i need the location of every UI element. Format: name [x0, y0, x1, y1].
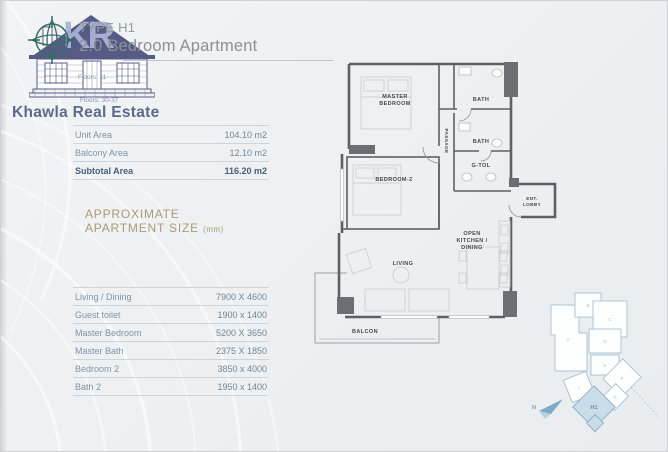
- brochure-page: KR TYPE H1 2.0 Bedroom Apartment Floors:…: [0, 0, 668, 452]
- table-row: Balcony Area 12.10 m2: [73, 144, 269, 162]
- north-arrow-icon: N: [532, 399, 563, 419]
- label-ent-lobby: ENT.: [526, 196, 538, 201]
- door-arc: [509, 205, 521, 217]
- size-row-value: 7900 X 4600: [216, 292, 267, 302]
- table-row: Living / Dining 7900 X 4600: [73, 287, 269, 306]
- size-row-value: 1950 x 1400: [217, 382, 267, 392]
- table-row: Master Bath 2375 X 1850: [73, 342, 269, 360]
- label-balcony: BALCON: [352, 329, 378, 335]
- size-row-label: Living / Dining: [75, 292, 132, 302]
- area-row-value: 104.10 m2: [224, 130, 267, 140]
- left-edge-strip: [1, 1, 7, 451]
- size-row-value: 2375 X 1850: [216, 346, 267, 356]
- label-guest-toilet: G-TOL: [471, 163, 490, 169]
- keyplan-boundary-dashed: [631, 387, 659, 417]
- svg-text:LOBBY: LOBBY: [523, 202, 541, 207]
- label-open-kitchen: OPEN: [463, 231, 480, 237]
- table-row: Unit Area 104.10 m2: [73, 125, 269, 144]
- size-row-value: 1900 x 1400: [217, 310, 267, 320]
- svg-text:G: G: [613, 395, 617, 400]
- svg-text:F: F: [621, 376, 624, 381]
- svg-text:DINING: DINING: [461, 245, 483, 251]
- dining-set: [459, 247, 507, 289]
- svg-text:B: B: [586, 303, 589, 308]
- kitchen-counter: [499, 221, 510, 287]
- area-row-label: Balcony Area: [75, 148, 128, 158]
- area-row-value: 12.10 m2: [229, 148, 267, 158]
- label-master-bedroom: MASTER: [382, 94, 408, 100]
- size-section-heading: APPROXIMATE APARTMENT SIZE (mm): [85, 207, 224, 237]
- area-row-label: Unit Area: [75, 130, 112, 140]
- label-living: LIVING: [393, 261, 414, 267]
- size-heading-line2-text: APARTMENT SIZE: [85, 221, 199, 235]
- bedroom2-bed: [353, 165, 401, 215]
- size-row-value: 3850 x 4000: [217, 364, 267, 374]
- window: [381, 316, 437, 319]
- size-row-label: Master Bedroom: [75, 328, 142, 338]
- table-row: Bath 2 1950 x 1400: [73, 378, 269, 396]
- svg-text:E: E: [603, 363, 606, 368]
- unit-type-label: TYPE H1: [79, 20, 257, 35]
- size-heading-unit: (mm): [203, 225, 224, 234]
- size-row-value: 5200 X 3650: [216, 328, 267, 338]
- key-plan: A B C D E F G I H1 N: [531, 287, 663, 445]
- company-name: Khawla Real Estate: [12, 104, 160, 122]
- door-arc: [423, 147, 439, 163]
- label-bedroom2: BEDROOM-2: [375, 177, 412, 183]
- title-divider: [123, 60, 333, 61]
- room-size-table: Living / Dining 7900 X 4600 Guest toilet…: [73, 287, 269, 396]
- keyplan-highlight-label: H1: [590, 405, 597, 411]
- window: [341, 169, 344, 221]
- size-row-label: Master Bath: [75, 346, 124, 356]
- size-heading-line2: APARTMENT SIZE (mm): [85, 221, 224, 237]
- area-table: Unit Area 104.10 m2 Balcony Area 12.10 m…: [73, 125, 269, 180]
- size-row-label: Bath 2: [75, 382, 101, 392]
- area-row-value: 116.20 m2: [224, 166, 267, 176]
- size-row-label: Guest toilet: [75, 310, 121, 320]
- table-row: Master Bedroom 5200 X 3650: [73, 324, 269, 342]
- living-sofa: [346, 248, 449, 311]
- door-arc: [481, 151, 491, 161]
- compass-logo-icon: [25, 13, 79, 67]
- svg-text:I: I: [578, 385, 579, 390]
- svg-text:KITCHEN /: KITCHEN /: [456, 238, 487, 244]
- north-label: N: [532, 405, 536, 411]
- table-row-subtotal: Subtotal Area 116.20 m2: [73, 162, 269, 180]
- floors-note-2: Floors: 30-37: [80, 97, 118, 104]
- door-arc: [459, 109, 471, 121]
- table-row: Bedroom 2 3850 x 4000: [73, 360, 269, 378]
- label-passage: PASSAGE: [444, 129, 449, 154]
- page-title: 2.0 Bedroom Apartment: [79, 37, 257, 56]
- label-bath-mid: BATH: [473, 139, 489, 145]
- table-row: Guest toilet 1900 x 1400: [73, 306, 269, 324]
- size-heading-line1: APPROXIMATE: [85, 207, 224, 221]
- label-bath-top: BATH: [473, 97, 489, 103]
- size-row-label: Bedroom 2: [75, 364, 119, 374]
- area-row-label: Subtotal Area: [75, 166, 133, 176]
- floors-note-1: Floors: 11: [78, 74, 106, 81]
- floor-plan-drawing: MASTER BEDROOM BATH BATH G-TOL PASSAGE B…: [309, 51, 567, 351]
- window: [449, 316, 489, 319]
- header-title-block: TYPE H1 2.0 Bedroom Apartment: [79, 20, 257, 56]
- svg-text:BEDROOM: BEDROOM: [379, 101, 411, 107]
